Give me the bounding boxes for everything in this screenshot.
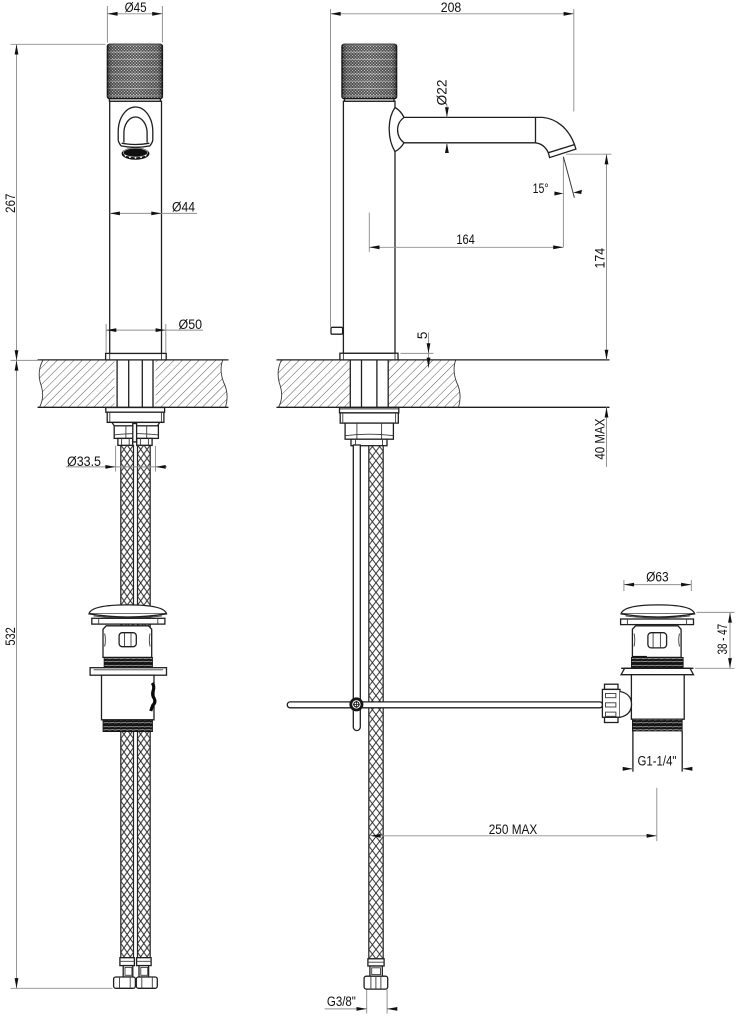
svg-text:G1-1/4": G1-1/4" xyxy=(638,754,677,769)
svg-text:Ø63: Ø63 xyxy=(646,569,669,584)
svg-text:532: 532 xyxy=(3,627,18,646)
svg-text:38 - 47: 38 - 47 xyxy=(715,624,730,655)
svg-text:250 MAX: 250 MAX xyxy=(489,822,538,837)
svg-text:Ø22: Ø22 xyxy=(435,80,450,106)
svg-text:Ø50: Ø50 xyxy=(179,317,203,332)
svg-text:15°: 15° xyxy=(533,181,549,196)
svg-text:Ø44: Ø44 xyxy=(172,199,195,214)
svg-text:Ø33.5: Ø33.5 xyxy=(67,454,101,469)
svg-text:267: 267 xyxy=(3,194,18,214)
svg-text:208: 208 xyxy=(441,0,462,15)
svg-text:164: 164 xyxy=(456,232,475,247)
svg-text:Ø45: Ø45 xyxy=(125,0,147,15)
svg-text:G3/8": G3/8" xyxy=(327,994,356,1009)
svg-text:174: 174 xyxy=(593,248,608,269)
svg-text:40 MAX: 40 MAX xyxy=(593,419,608,460)
svg-text:5: 5 xyxy=(415,332,430,340)
